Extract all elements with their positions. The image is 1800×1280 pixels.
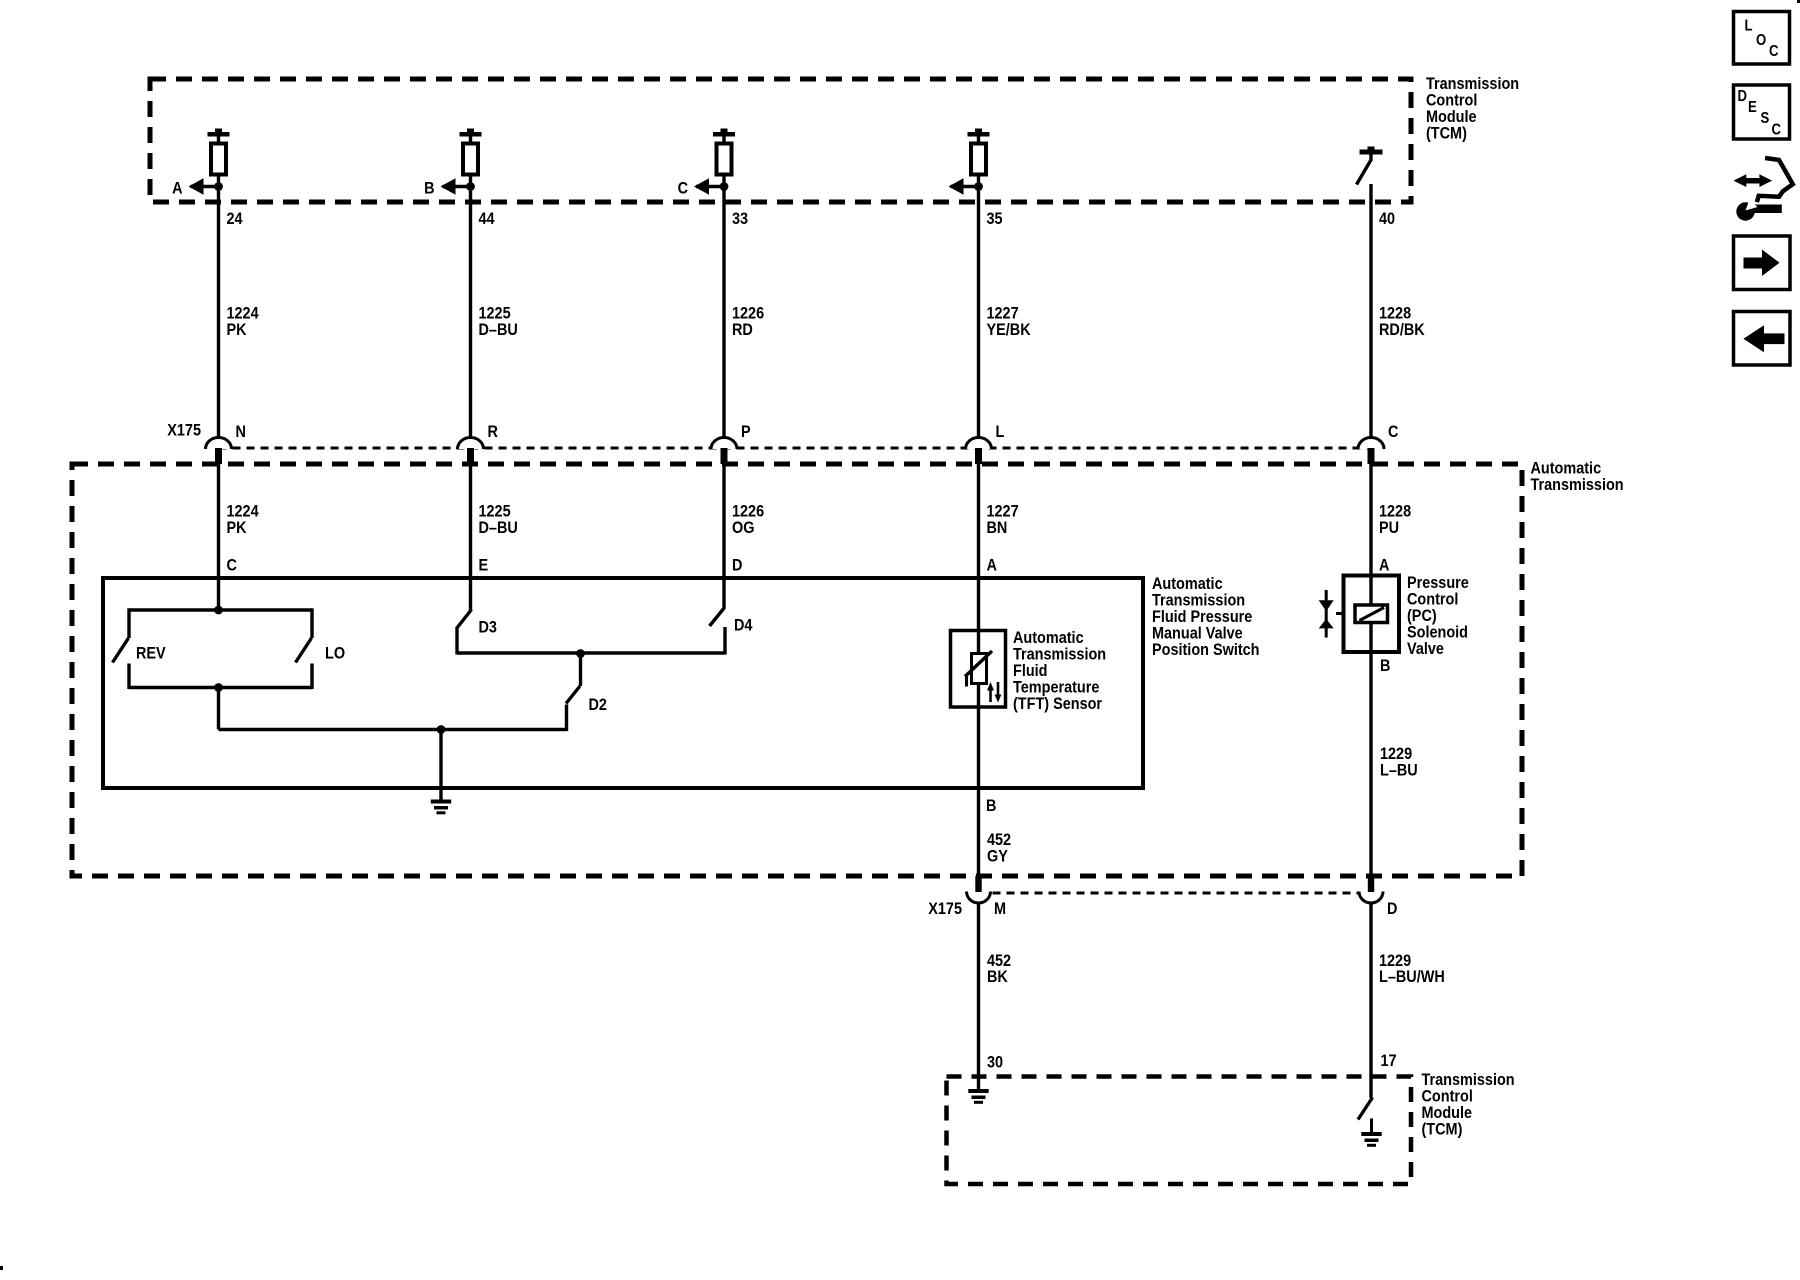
svg-text:C: C (227, 556, 237, 574)
svg-text:M: M (994, 900, 1006, 918)
svg-text:RD: RD (732, 321, 753, 339)
svg-text:D–BU: D–BU (479, 321, 518, 339)
svg-text:O: O (1756, 32, 1766, 49)
svg-text:A: A (172, 179, 182, 197)
svg-text:N: N (236, 423, 246, 441)
svg-text:R: R (488, 423, 499, 441)
svg-text:44: 44 (479, 210, 495, 228)
svg-text:BK: BK (987, 968, 1008, 986)
svg-text:D–BU: D–BU (479, 519, 518, 537)
svg-text:C: C (1772, 122, 1782, 139)
svg-text:L–BU/WH: L–BU/WH (1379, 968, 1445, 986)
svg-text:L–BU: L–BU (1380, 761, 1418, 779)
svg-text:X175: X175 (928, 900, 962, 918)
svg-text:OG: OG (732, 519, 754, 537)
svg-text:A: A (987, 556, 997, 574)
svg-text:30: 30 (987, 1053, 1003, 1071)
svg-text:D2: D2 (589, 696, 608, 714)
svg-text:D4: D4 (734, 616, 753, 634)
svg-text:D3: D3 (479, 618, 498, 636)
svg-text:40: 40 (1379, 210, 1395, 228)
svg-text:PU: PU (1379, 519, 1399, 537)
svg-text:24: 24 (227, 210, 243, 228)
svg-text:33: 33 (732, 210, 748, 228)
svg-text:PK: PK (227, 321, 248, 339)
svg-text:C: C (678, 179, 688, 197)
svg-text:X175: X175 (167, 421, 201, 439)
svg-text:A: A (1379, 556, 1389, 574)
svg-text:RD/BK: RD/BK (1379, 321, 1425, 339)
svg-text:Position Switch: Position Switch (1152, 641, 1260, 659)
svg-text:D: D (732, 556, 742, 574)
svg-text:B: B (1380, 657, 1390, 675)
svg-text:BN: BN (987, 519, 1008, 537)
svg-text:C: C (1769, 43, 1779, 60)
svg-text:REV: REV (136, 644, 166, 662)
svg-text:B: B (424, 179, 434, 197)
svg-text:35: 35 (987, 210, 1003, 228)
svg-text:C: C (1388, 423, 1398, 441)
svg-text:L: L (1745, 18, 1753, 35)
svg-text:LO: LO (325, 644, 345, 662)
svg-text:D: D (1387, 900, 1397, 918)
svg-text:Valve: Valve (1407, 640, 1444, 658)
svg-text:(TFT) Sensor: (TFT) Sensor (1013, 695, 1102, 713)
svg-text:(TCM): (TCM) (1422, 1120, 1463, 1138)
svg-text:L: L (996, 423, 1005, 441)
svg-text:D: D (1738, 88, 1748, 105)
svg-text:17: 17 (1381, 1052, 1397, 1070)
svg-text:Transmission: Transmission (1531, 476, 1624, 494)
svg-text:GY: GY (987, 847, 1008, 865)
svg-text:E: E (479, 556, 489, 574)
svg-text:S: S (1761, 110, 1770, 127)
svg-text:PK: PK (227, 519, 248, 537)
svg-text:(TCM): (TCM) (1426, 124, 1467, 142)
svg-text:B: B (986, 797, 996, 815)
svg-text:P: P (741, 423, 751, 441)
svg-text:E: E (1748, 99, 1757, 116)
svg-text:YE/BK: YE/BK (987, 321, 1032, 339)
